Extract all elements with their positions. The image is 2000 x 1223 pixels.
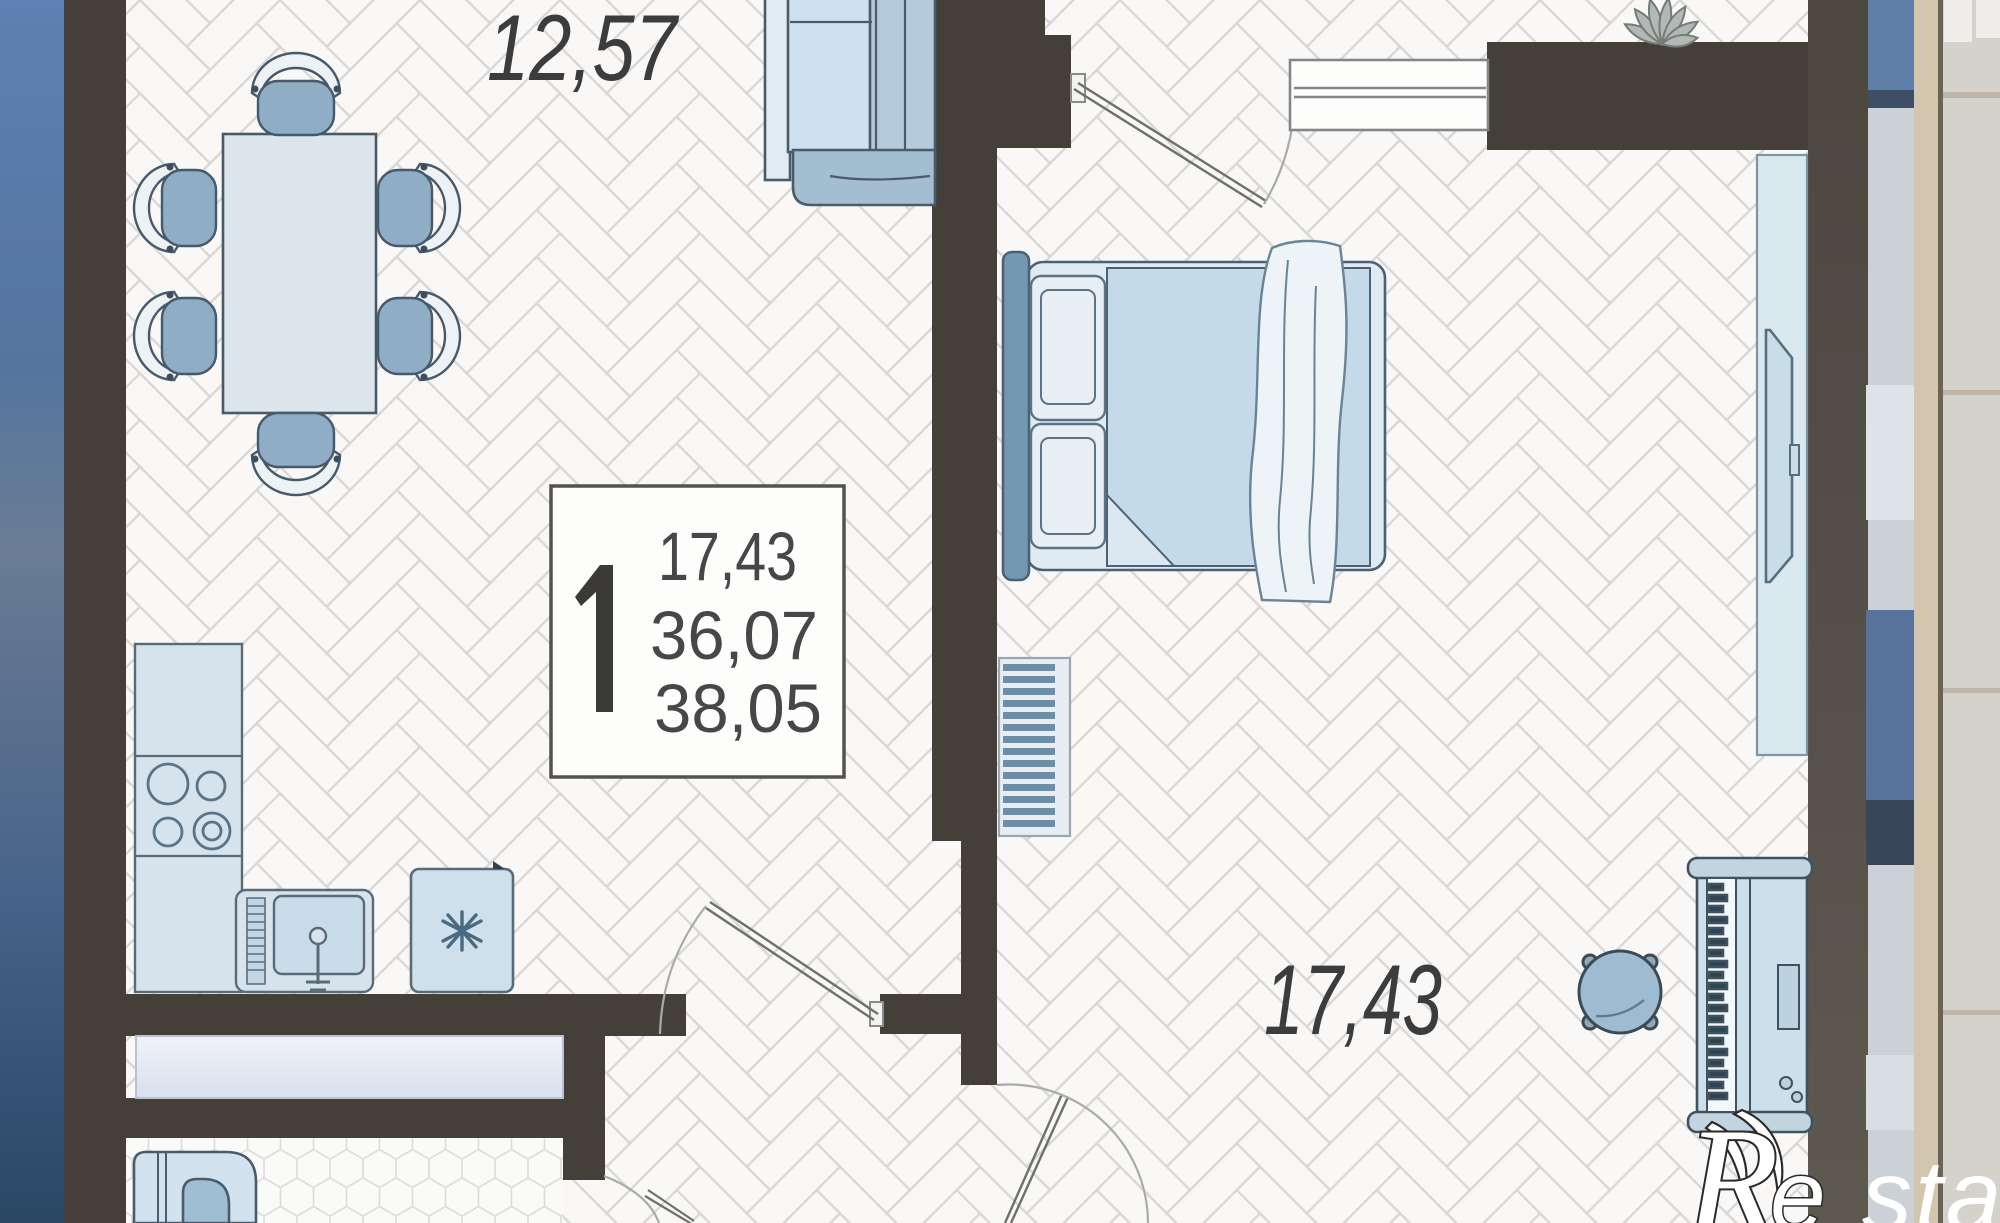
svg-text:R: R xyxy=(1685,1097,1779,1223)
svg-text:17,43: 17,43 xyxy=(658,518,797,595)
svg-text:state: state xyxy=(1862,1140,2000,1223)
svg-text:38,05: 38,05 xyxy=(654,670,822,747)
svg-text:e: e xyxy=(1770,1140,1826,1223)
svg-text:17,43: 17,43 xyxy=(1264,944,1442,1055)
svg-text:12,57: 12,57 xyxy=(487,0,680,100)
svg-text:36,07: 36,07 xyxy=(650,597,818,674)
